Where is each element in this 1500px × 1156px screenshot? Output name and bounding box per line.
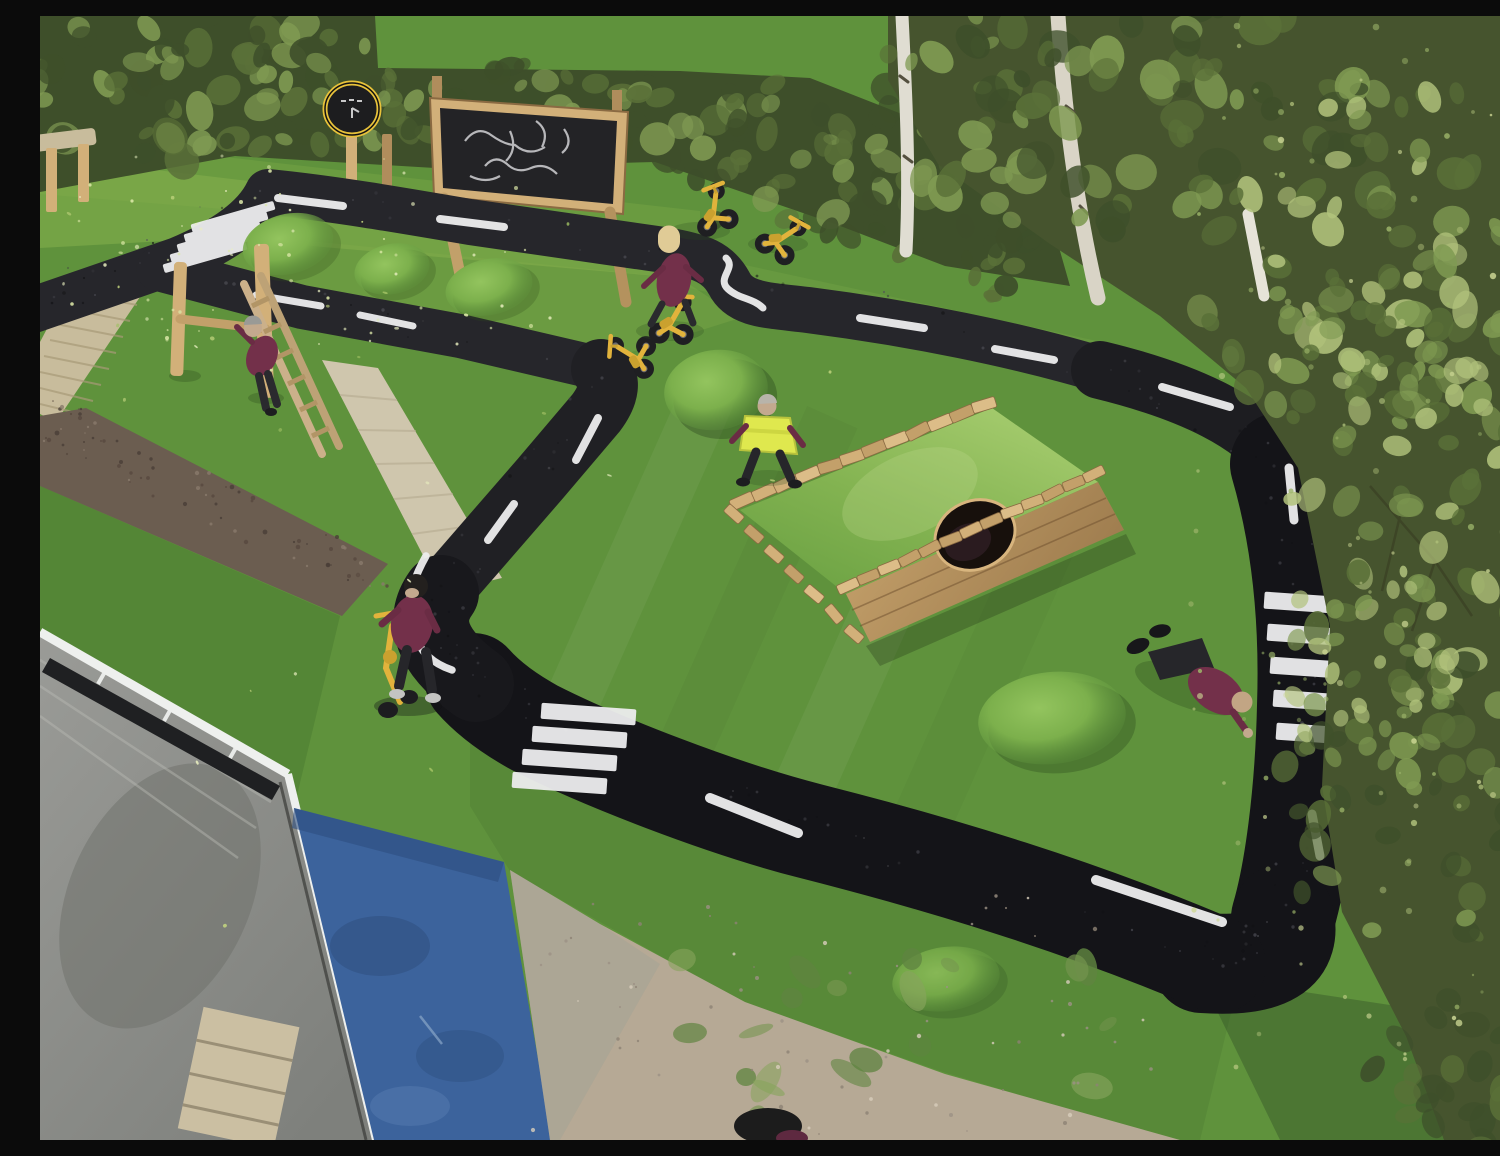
playground-aerial-photo: Drone photograph of a nursery playground…: [40, 16, 1500, 1140]
playground-scene: Aerial view of a school playground roadw…: [40, 16, 1500, 1140]
blonde-hair: [658, 225, 680, 253]
chalkboard-surface: [440, 108, 617, 204]
